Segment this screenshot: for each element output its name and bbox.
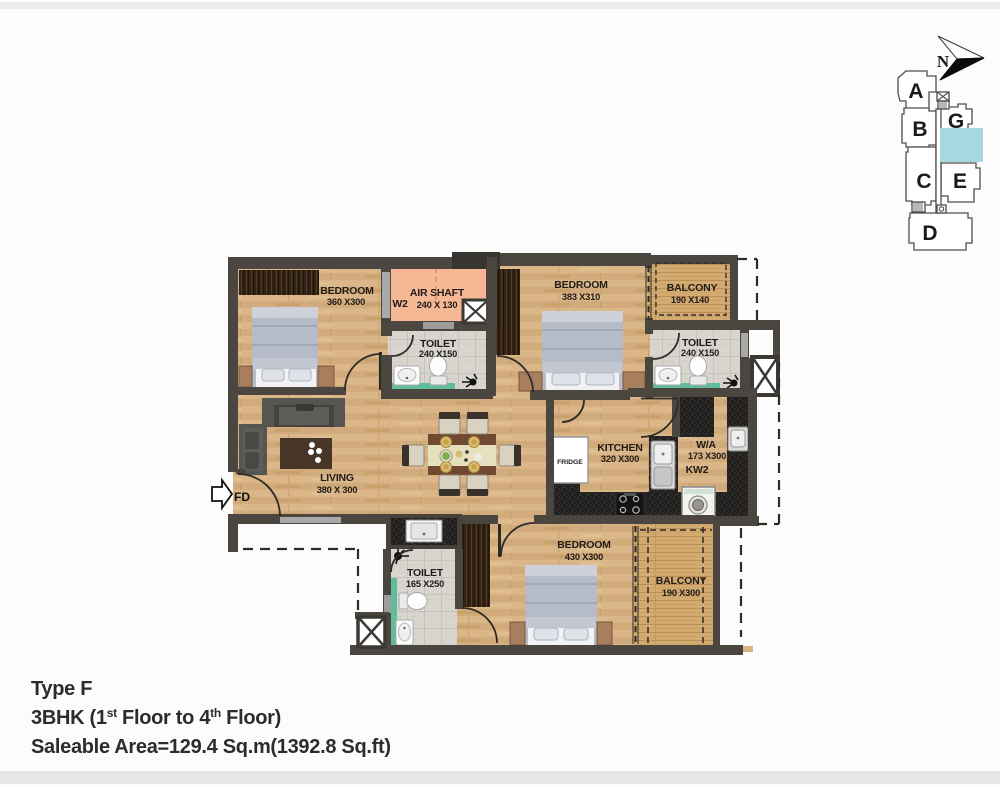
svg-text:G: G — [948, 110, 964, 133]
svg-text:D: D — [922, 222, 937, 245]
svg-text:FD: FD — [234, 490, 250, 504]
svg-text:W/A: W/A — [696, 439, 716, 451]
svg-text:3BHK (1st Floor to 4th Floor): 3BHK (1st Floor to 4th Floor) — [31, 706, 281, 729]
svg-text:Saleable Area=129.4 Sq.m(1392.: Saleable Area=129.4 Sq.m(1392.8 Sq.ft) — [31, 736, 391, 758]
svg-text:B: B — [912, 118, 927, 141]
svg-text:BEDROOM: BEDROOM — [554, 279, 608, 291]
svg-text:E: E — [953, 170, 967, 193]
svg-text:W2: W2 — [392, 298, 408, 310]
svg-text:BEDROOM: BEDROOM — [557, 539, 611, 551]
svg-text:380 X 300: 380 X 300 — [317, 485, 358, 495]
svg-text:360 X300: 360 X300 — [327, 297, 365, 307]
svg-text:LIVING: LIVING — [320, 472, 354, 484]
svg-text:AIR SHAFT: AIR SHAFT — [410, 287, 465, 299]
svg-text:Type F: Type F — [31, 678, 92, 700]
svg-text:KITCHEN: KITCHEN — [597, 442, 642, 454]
svg-text:A: A — [908, 80, 923, 103]
svg-text:240 X150: 240 X150 — [681, 348, 719, 358]
svg-text:383 X310: 383 X310 — [562, 292, 600, 302]
svg-text:165 X250: 165 X250 — [406, 579, 444, 589]
svg-text:C: C — [916, 170, 931, 193]
svg-text:BALCONY: BALCONY — [667, 282, 718, 294]
svg-text:173 X300: 173 X300 — [688, 451, 726, 461]
svg-text:BEDROOM: BEDROOM — [320, 285, 374, 297]
svg-text:N: N — [937, 52, 950, 71]
svg-text:430 X300: 430 X300 — [565, 552, 603, 562]
svg-text:320 X300: 320 X300 — [601, 454, 639, 464]
svg-text:TOILET: TOILET — [407, 567, 444, 579]
svg-text:240 X 130: 240 X 130 — [417, 300, 458, 310]
svg-text:FRIDGE: FRIDGE — [557, 459, 583, 466]
svg-text:KW2: KW2 — [686, 464, 709, 476]
svg-text:190 X300: 190 X300 — [662, 588, 700, 598]
svg-text:240 X150: 240 X150 — [419, 349, 457, 359]
svg-text:190 X140: 190 X140 — [671, 295, 709, 305]
svg-text:BALCONY: BALCONY — [656, 575, 707, 587]
